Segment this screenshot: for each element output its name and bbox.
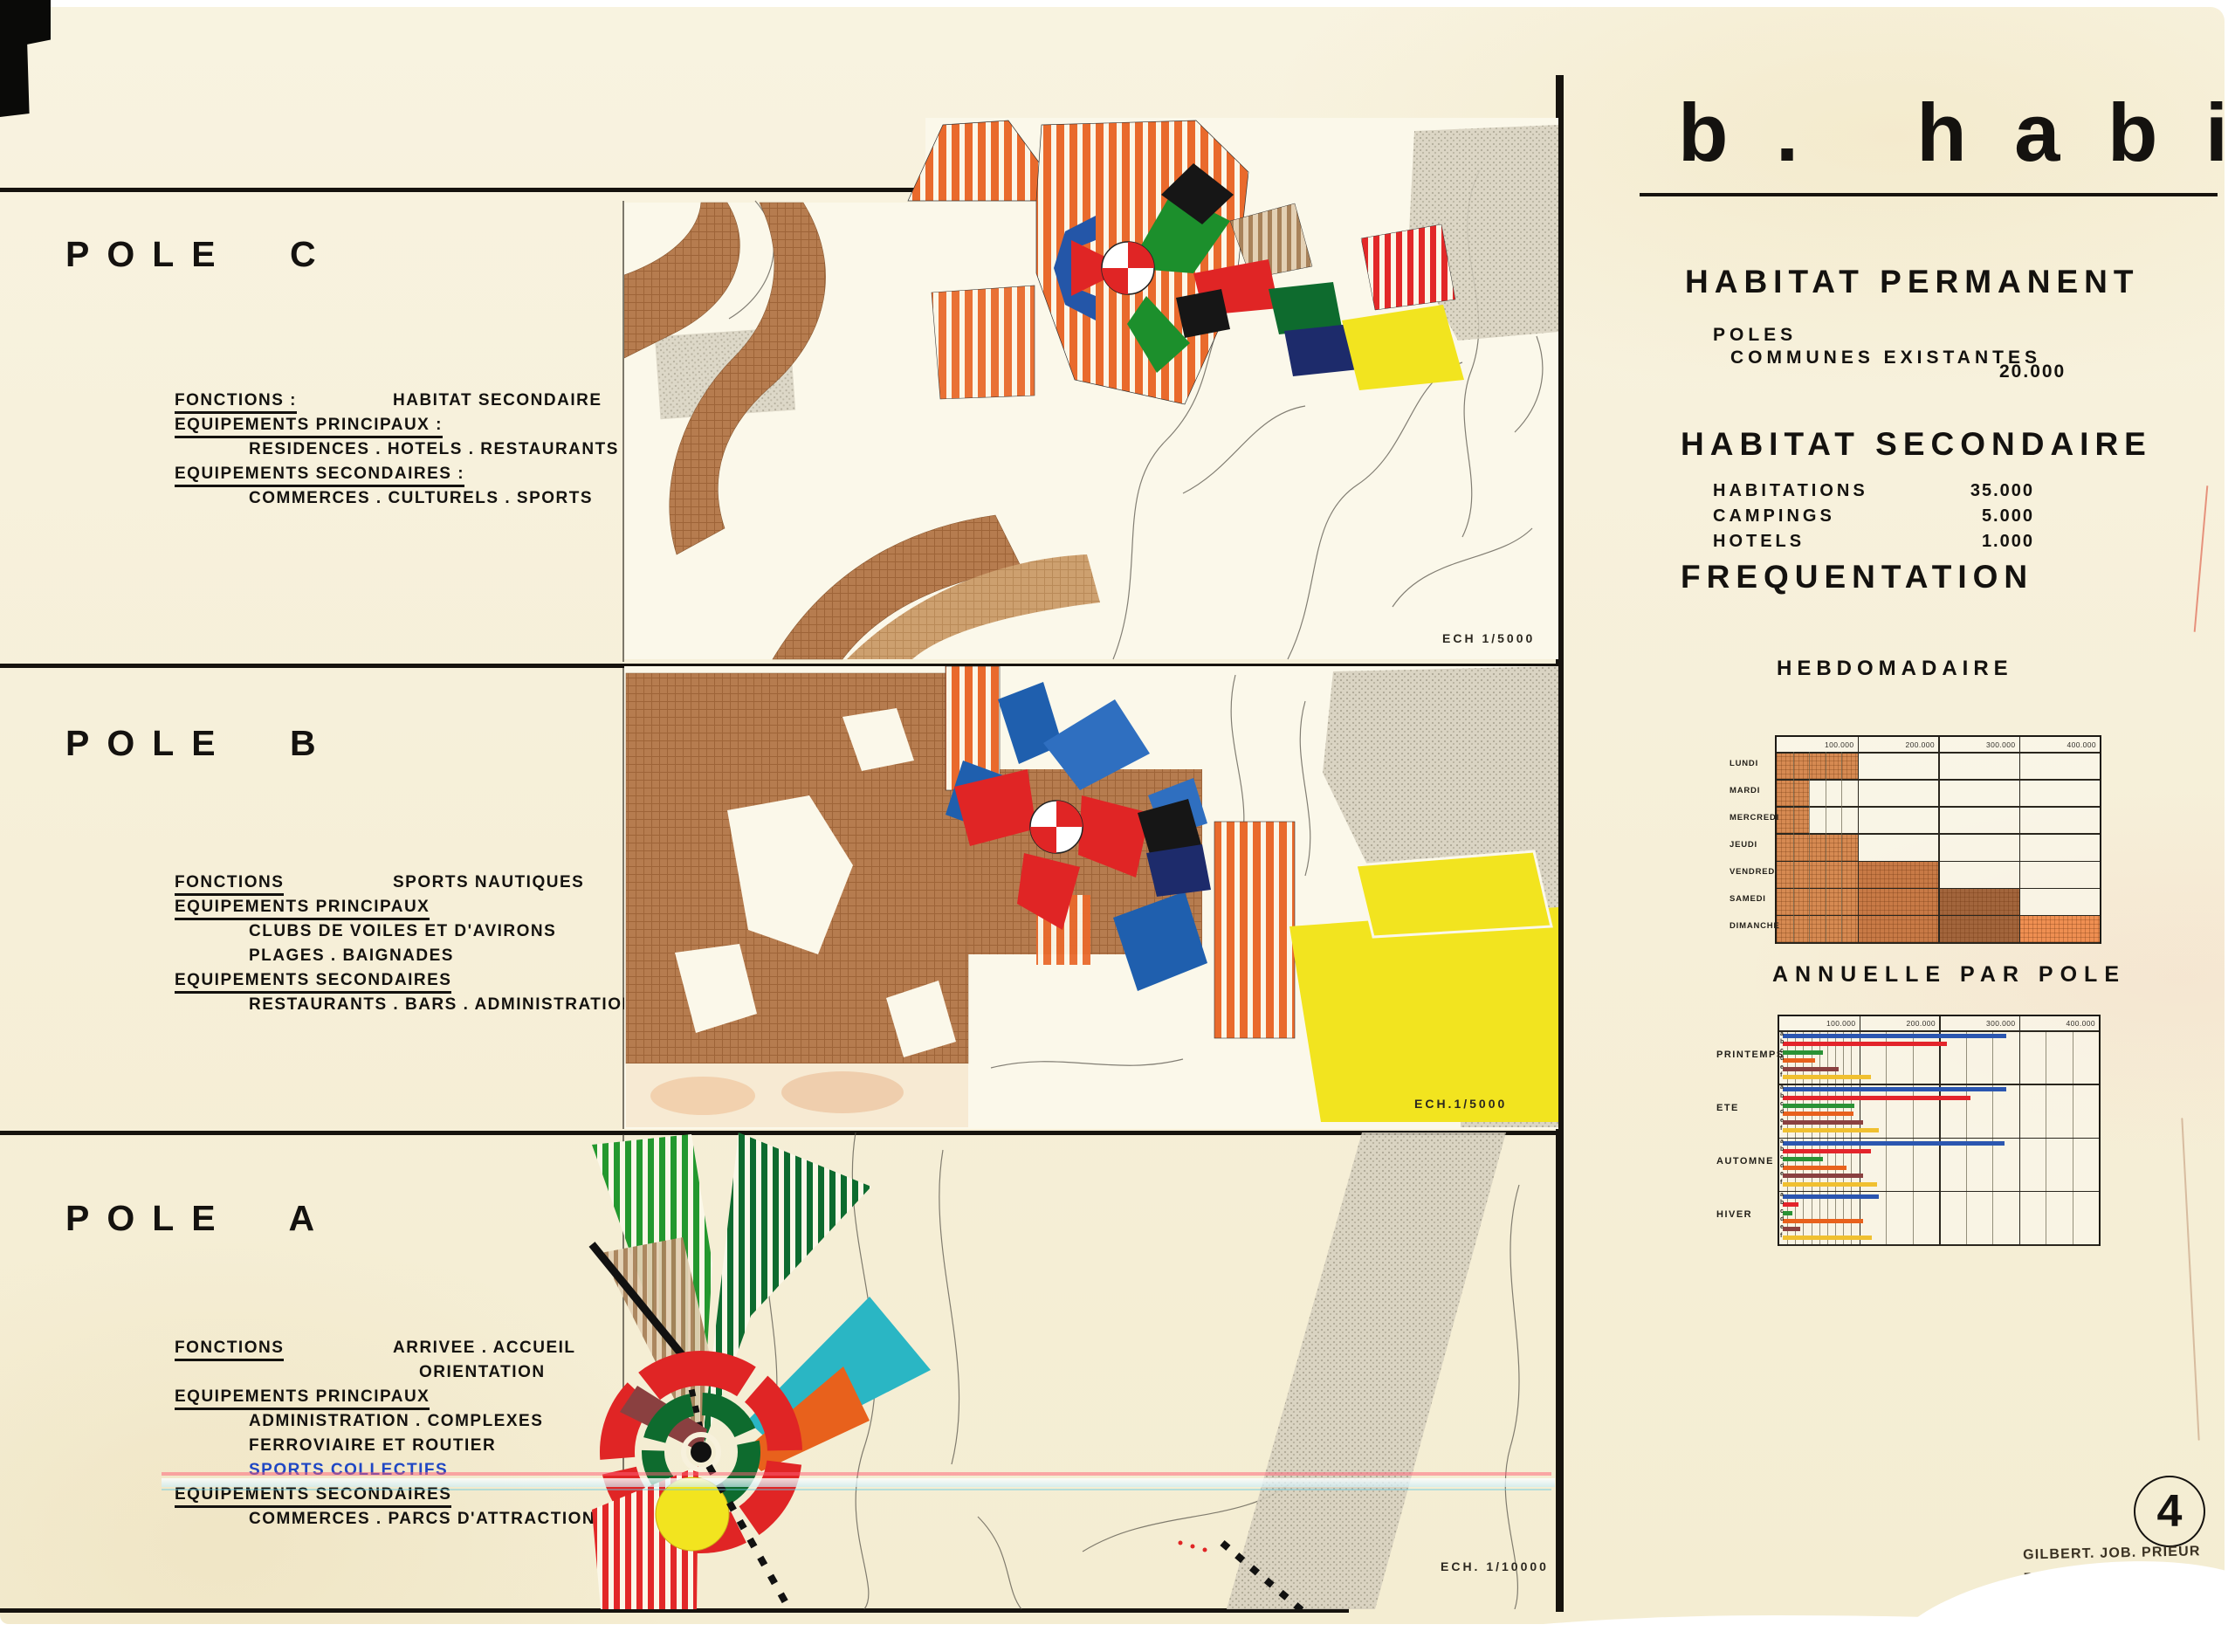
spec-label: FONCTIONS <box>175 1339 284 1361</box>
frequentation-heading: FREQUENTATION <box>1681 559 2033 595</box>
stat-value: 35.000 <box>1905 481 2034 501</box>
spec-line: EQUIPEMENTS SECONDAIRES : <box>175 465 664 489</box>
series-bar <box>1783 1075 1871 1079</box>
spec-label: SPORTS COLLECTIFS <box>249 1461 448 1480</box>
hebdo-heading: HEBDOMADAIRE <box>1777 657 2013 681</box>
chart-row-line <box>1779 1030 2099 1032</box>
pole-b-map-collage <box>624 666 1558 1129</box>
habitat-secondaire-stats: HABITATIONS35.000CAMPINGS5.000HOTELS1.00… <box>1713 481 2080 557</box>
series-bar <box>1783 1236 1872 1240</box>
chart-tick-label: 200.000 <box>1884 740 1935 749</box>
spec-line: CLUBS DE VOILES ET D'AVIRONS <box>175 922 664 946</box>
chart-bar-segment <box>1858 915 1939 942</box>
series-bar <box>1783 1050 1823 1055</box>
pole-c-map-collage <box>624 118 1558 662</box>
series-bar <box>1783 1034 2006 1038</box>
series-letter: e <box>1780 1224 1784 1230</box>
pole-a-scale-label: ECH. 1/10000 <box>1441 1559 1549 1573</box>
chart-gridline-major <box>1939 1016 1941 1244</box>
series-letter: a <box>1780 1192 1784 1198</box>
series-letter: f <box>1780 1125 1782 1132</box>
series-letter: a <box>1780 1139 1784 1145</box>
series-letter: a <box>1780 1031 1784 1037</box>
stat-value: 5.000 <box>1905 506 2034 527</box>
series-bar <box>1783 1096 1970 1100</box>
chart-row-line <box>1777 942 2100 944</box>
chart-bar-segment <box>1777 888 1858 915</box>
series-bar <box>1783 1112 1853 1116</box>
season-label: AUTOMNE <box>1716 1156 1774 1167</box>
page-number-badge: 4 <box>2134 1476 2205 1547</box>
pole-c-scale-label: ECH 1/5000 <box>1442 631 1535 645</box>
spec-label: CLUBS DE VOILES ET D'AVIRONS <box>249 922 556 941</box>
series-letter: c <box>1780 1208 1784 1215</box>
stat-row: HOTELS1.000 <box>1713 532 2080 557</box>
habitat-permanent-line-communes: COMMUNES EXISTANTES <box>1730 348 2041 368</box>
series-letter: a <box>1780 1084 1784 1091</box>
series-bar <box>1783 1211 1792 1215</box>
habitat-permanent-heading: HABITAT PERMANENT <box>1685 264 2140 300</box>
chart-gridline-minor <box>1793 752 1794 942</box>
series-bar <box>1783 1067 1839 1071</box>
day-label: JEUDI <box>1730 840 1757 850</box>
chart-gridline-major <box>2019 737 2021 942</box>
chart-gridline-minor <box>1809 752 1810 942</box>
series-bar <box>1783 1104 1854 1108</box>
series-letter: e <box>1780 1064 1784 1070</box>
spec-line: RESTAURANTS . BARS . ADMINISTRATION <box>175 995 664 1020</box>
chart-bar-segment <box>1777 833 1858 860</box>
chart-bar-segment <box>1777 752 1858 779</box>
annual-chart: 100.000200.000300.000400.000abcdefabcdef… <box>1778 1015 2101 1246</box>
hebdo-day-labels: LUNDIMARDIMERCREDIJEUDIVENDREDISAMEDIDIM… <box>1730 735 1773 940</box>
spec-label: EQUIPEMENTS SECONDAIRES : <box>175 465 464 487</box>
chart-tick-label: 100.000 <box>1804 740 1854 749</box>
chart-tick-label: 100.000 <box>1805 1019 1856 1028</box>
series-bar <box>1783 1194 1879 1199</box>
series-letter: d <box>1780 1163 1784 1169</box>
annual-heading: ANNUELLE PAR POLE <box>1772 962 2126 988</box>
series-letter: f <box>1780 1233 1782 1239</box>
chart-tick-label: 400.000 <box>2046 740 2096 749</box>
chart-bar-segment <box>1777 861 1858 888</box>
series-bar <box>1783 1087 2006 1091</box>
spec-line: EQUIPEMENTS SECONDAIRES <box>175 971 664 995</box>
series-bar <box>1783 1202 1798 1207</box>
pole-c-title: POLE C <box>65 234 334 275</box>
series-bar <box>1783 1128 1879 1132</box>
spec-label: PLAGES . BAIGNADES <box>249 946 454 966</box>
chart-gridline-minor <box>1841 752 1842 942</box>
spec-label: EQUIPEMENTS PRINCIPAUX <box>175 898 430 920</box>
pole-b-spec-list: FONCTIONSSPORTS NAUTIQUESEQUIPEMENTS PRI… <box>175 873 664 1020</box>
chart-gridline-minor <box>1826 752 1826 942</box>
day-label: SAMEDI <box>1730 894 1766 904</box>
pole-a-map-collage <box>489 1132 1558 1609</box>
stat-row: HABITATIONS35.000 <box>1713 481 2080 506</box>
habitat-permanent-line-poles: POLES <box>1713 325 1797 346</box>
season-label: PRINTEMPS <box>1716 1050 1785 1060</box>
series-letter: b <box>1780 1039 1784 1045</box>
day-label: LUNDI <box>1730 759 1758 768</box>
series-letter: b <box>1780 1200 1784 1206</box>
day-label: MERCREDI <box>1730 813 1779 823</box>
chart-gridline-major <box>1858 737 1860 942</box>
chart-gridline-major <box>2019 1016 2021 1244</box>
series-bar <box>1783 1149 1871 1153</box>
chart-row-line <box>1779 1084 2099 1085</box>
spec-label: RESTAURANTS . BARS . ADMINISTRATION <box>249 995 636 1015</box>
day-label: MARDI <box>1730 786 1760 795</box>
pole-b-scale-label: ECH.1/5000 <box>1414 1097 1507 1111</box>
chart-row-line <box>1779 1191 2099 1193</box>
chart-tick-label: 300.000 <box>1965 1019 2016 1028</box>
pole-a-title: POLE A <box>65 1198 332 1239</box>
board-title: b. habita <box>1678 86 2235 180</box>
chart-bar-segment <box>1858 888 1939 915</box>
spec-label: FONCTIONS <box>175 873 284 896</box>
chart-bar-segment <box>1938 915 2019 942</box>
series-letter: c <box>1780 1154 1784 1160</box>
spec-value: HABITAT SECONDAIRE <box>393 391 602 410</box>
season-label: ETE <box>1716 1103 1739 1113</box>
chart-gridline-major <box>1938 737 1940 942</box>
series-letter: e <box>1780 1118 1784 1124</box>
series-bar <box>1783 1157 1823 1161</box>
series-letter: b <box>1780 1093 1784 1099</box>
spec-label: FERROVIAIRE ET ROUTIER <box>249 1436 496 1456</box>
spec-label: EQUIPEMENTS PRINCIPAUX : <box>175 416 443 438</box>
spec-label: EQUIPEMENTS PRINCIPAUX <box>175 1387 430 1410</box>
spec-label: EQUIPEMENTS SECONDAIRES <box>175 1485 451 1508</box>
spec-label: RESIDENCES . HOTELS . RESTAURANTS <box>249 440 619 459</box>
series-letter: d <box>1780 1109 1784 1115</box>
series-bar <box>1783 1042 1947 1046</box>
series-bar <box>1783 1182 1877 1187</box>
annual-season-labels: PRINTEMPSETEAUTOMNEHIVER <box>1716 1015 1774 1242</box>
stat-value: 1.000 <box>1905 532 2034 552</box>
chart-bar-segment <box>1938 888 2019 915</box>
series-bar <box>1783 1058 1815 1063</box>
series-letter: f <box>1780 1072 1782 1078</box>
series-bar <box>1783 1174 1863 1178</box>
spec-label: FONCTIONS : <box>175 391 297 414</box>
scanned-presentation-board: POLE C FONCTIONS :HABITAT SECONDAIREEQUI… <box>0 0 2235 1652</box>
spec-line: EQUIPEMENTS PRINCIPAUX : <box>175 416 664 440</box>
chart-bar-segment <box>1777 915 1858 942</box>
spec-label: EQUIPEMENTS SECONDAIRES <box>175 971 451 994</box>
chart-row-line <box>1779 1244 2099 1246</box>
series-bar <box>1783 1166 1846 1170</box>
spec-line: RESIDENCES . HOTELS . RESTAURANTS <box>175 440 664 465</box>
chart-bar-segment <box>1858 861 1939 888</box>
spec-value: SPORTS NAUTIQUES <box>393 873 584 892</box>
series-bar <box>1783 1219 1863 1223</box>
spec-line: PLAGES . BAIGNADES <box>175 946 664 971</box>
hebdo-chart: 100.000200.000300.000400.000 <box>1775 735 2101 944</box>
chart-row-line <box>1779 1138 2099 1139</box>
chart-tick-label: 200.000 <box>1885 1019 1936 1028</box>
series-letter: e <box>1780 1171 1784 1177</box>
habitat-secondaire-heading: HABITAT SECONDAIRE <box>1681 426 2152 463</box>
spec-label: COMMERCES . CULTURELS . SPORTS <box>249 489 593 508</box>
spec-line: EQUIPEMENTS PRINCIPAUX <box>175 898 664 922</box>
day-label: VENDREDI <box>1730 867 1778 877</box>
habitat-permanent-value: 20.000 <box>1999 361 2066 382</box>
season-label: HIVER <box>1716 1209 1752 1220</box>
series-bar <box>1783 1120 1863 1125</box>
chart-tick-label: 400.000 <box>2045 1019 2095 1028</box>
day-label: DIMANCHE <box>1730 921 1780 931</box>
board-title-underline <box>1640 193 2218 196</box>
chart-bar-segment <box>2019 915 2101 942</box>
series-bar <box>1783 1227 1800 1231</box>
page-number: 4 <box>2157 1485 2183 1538</box>
spec-line: COMMERCES . CULTURELS . SPORTS <box>175 489 664 513</box>
series-bar <box>1783 1141 2005 1146</box>
stat-row: CAMPINGS5.000 <box>1713 506 2080 532</box>
spec-line: FONCTIONS :HABITAT SECONDAIRE <box>175 391 664 416</box>
chart-tick-label: 300.000 <box>1965 740 2016 749</box>
pole-b-title: POLE B <box>65 723 334 764</box>
series-letter: f <box>1780 1180 1782 1186</box>
spec-line: FONCTIONSSPORTS NAUTIQUES <box>175 873 664 898</box>
series-letter: c <box>1780 1101 1784 1107</box>
pole-c-spec-list: FONCTIONS :HABITAT SECONDAIREEQUIPEMENTS… <box>175 391 664 513</box>
series-letter: b <box>1780 1146 1784 1153</box>
series-letter: d <box>1780 1216 1784 1222</box>
